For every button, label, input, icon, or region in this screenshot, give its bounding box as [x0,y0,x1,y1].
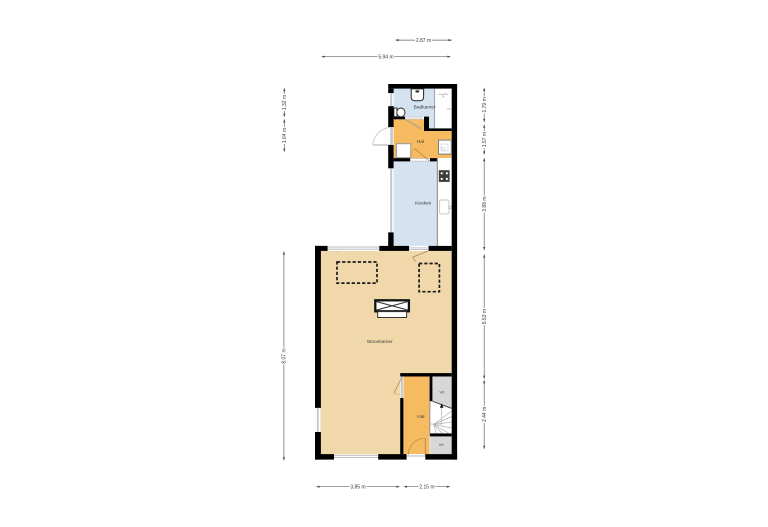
svg-text:VK: VK [440,389,446,394]
svg-text:1.64 m: 1.64 m [282,128,288,143]
svg-text:8.07 m: 8.07 m [282,348,288,363]
svg-text:2.15 m: 2.15 m [419,484,434,490]
svg-text:Keuken: Keuken [415,200,432,206]
svg-text:Woonkamer: Woonkamer [367,339,393,345]
svg-text:Badkamer: Badkamer [414,104,436,110]
svg-text:Hal: Hal [417,139,424,145]
svg-text:2.87 m: 2.87 m [416,38,431,44]
svg-text:1.57 m: 1.57 m [482,132,488,147]
svg-text:3.88 m: 3.88 m [482,196,488,211]
svg-text:2.44 m: 2.44 m [482,407,488,422]
svg-text:3.85 m: 3.85 m [350,484,365,490]
svg-text:VK: VK [439,442,445,447]
svg-text:1.32 m: 1.32 m [282,95,288,110]
svg-text:5.53 m: 5.53 m [482,309,488,324]
svg-text:Hal: Hal [417,414,424,420]
svg-text:1.79 m: 1.79 m [482,97,488,112]
svg-text:5.94 m: 5.94 m [378,54,393,60]
